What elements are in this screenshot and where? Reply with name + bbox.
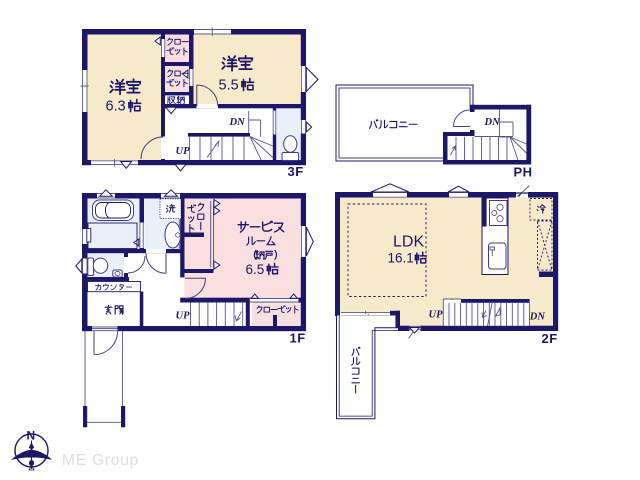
svg-text:PH: PH xyxy=(514,165,533,180)
svg-text:N: N xyxy=(27,429,36,443)
svg-text:5.5: 5.5 xyxy=(219,78,239,94)
svg-text:ME Group: ME Group xyxy=(62,452,139,469)
svg-text:UP: UP xyxy=(429,310,444,321)
svg-text:DN: DN xyxy=(529,312,546,323)
svg-text:DN: DN xyxy=(484,117,501,128)
svg-text:2F: 2F xyxy=(542,331,558,346)
svg-text:DN: DN xyxy=(229,117,246,128)
svg-text:6.5: 6.5 xyxy=(246,262,265,277)
svg-text:LDK: LDK xyxy=(393,234,424,251)
svg-text:UP: UP xyxy=(176,311,191,322)
svg-text:16.1: 16.1 xyxy=(388,251,414,266)
svg-text:UP: UP xyxy=(176,146,191,157)
svg-text:6.3: 6.3 xyxy=(106,99,126,115)
svg-text:3F: 3F xyxy=(288,164,304,179)
svg-text:1F: 1F xyxy=(290,331,306,346)
